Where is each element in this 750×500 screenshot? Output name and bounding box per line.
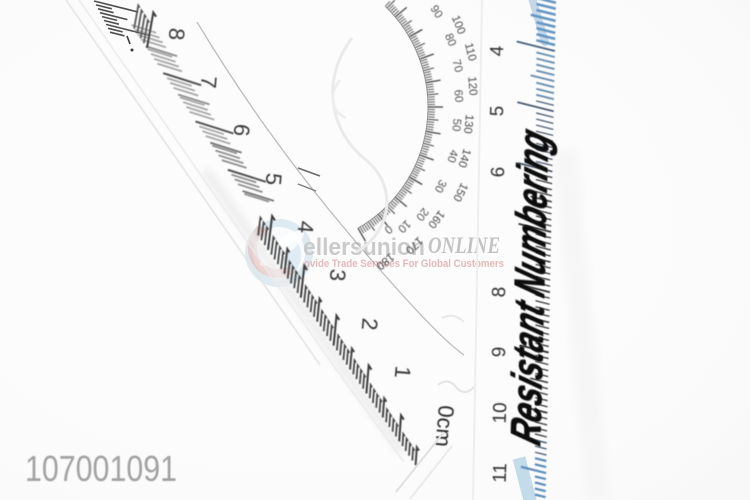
svg-text:Resistant Numbering: Resistant Numbering: [502, 123, 558, 450]
svg-text:50: 50: [449, 118, 462, 132]
svg-text:5: 5: [261, 172, 287, 186]
svg-text:120: 120: [465, 76, 478, 96]
svg-text:11: 11: [490, 463, 512, 483]
svg-text:3: 3: [325, 268, 351, 282]
svg-text:5: 5: [487, 105, 508, 116]
svg-text:2: 2: [357, 317, 383, 331]
svg-text:8: 8: [164, 27, 190, 41]
svg-text:4: 4: [293, 220, 319, 234]
svg-text:6: 6: [488, 166, 509, 177]
svg-text:107001091: 107001091: [25, 448, 177, 489]
svg-text:130: 130: [461, 114, 475, 134]
svg-text:60: 60: [452, 89, 465, 103]
svg-text:ONLINE: ONLINE: [428, 233, 500, 258]
svg-text:6: 6: [229, 123, 255, 137]
svg-text:0cm: 0cm: [430, 404, 459, 448]
svg-text:4: 4: [487, 45, 508, 57]
svg-text:7: 7: [196, 75, 222, 89]
svg-text:1: 1: [390, 365, 416, 379]
